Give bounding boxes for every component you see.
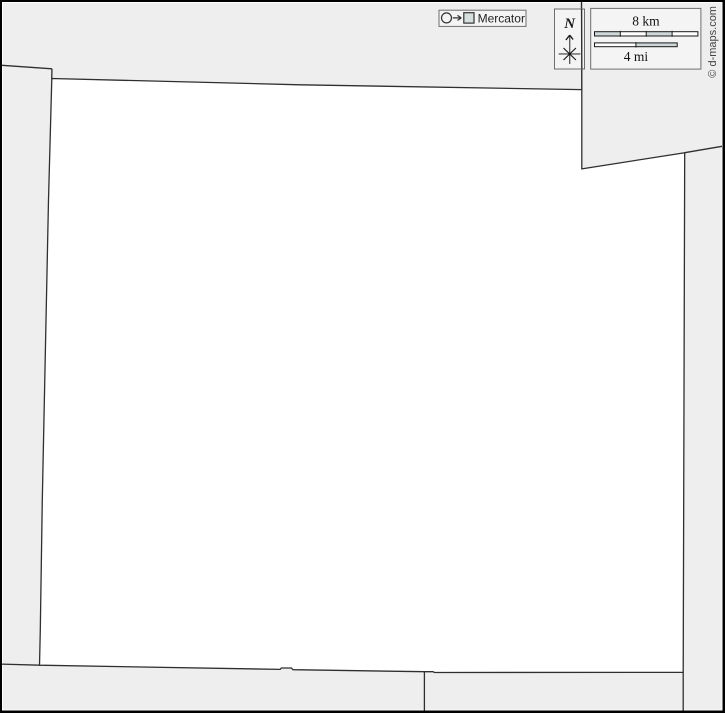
svg-text:© d-maps.com: © d-maps.com [707, 6, 719, 78]
svg-text:8 km: 8 km [632, 13, 660, 28]
svg-text:N: N [563, 16, 576, 32]
svg-text:Mercator: Mercator [478, 11, 525, 25]
svg-text:4 mi: 4 mi [624, 49, 649, 64]
